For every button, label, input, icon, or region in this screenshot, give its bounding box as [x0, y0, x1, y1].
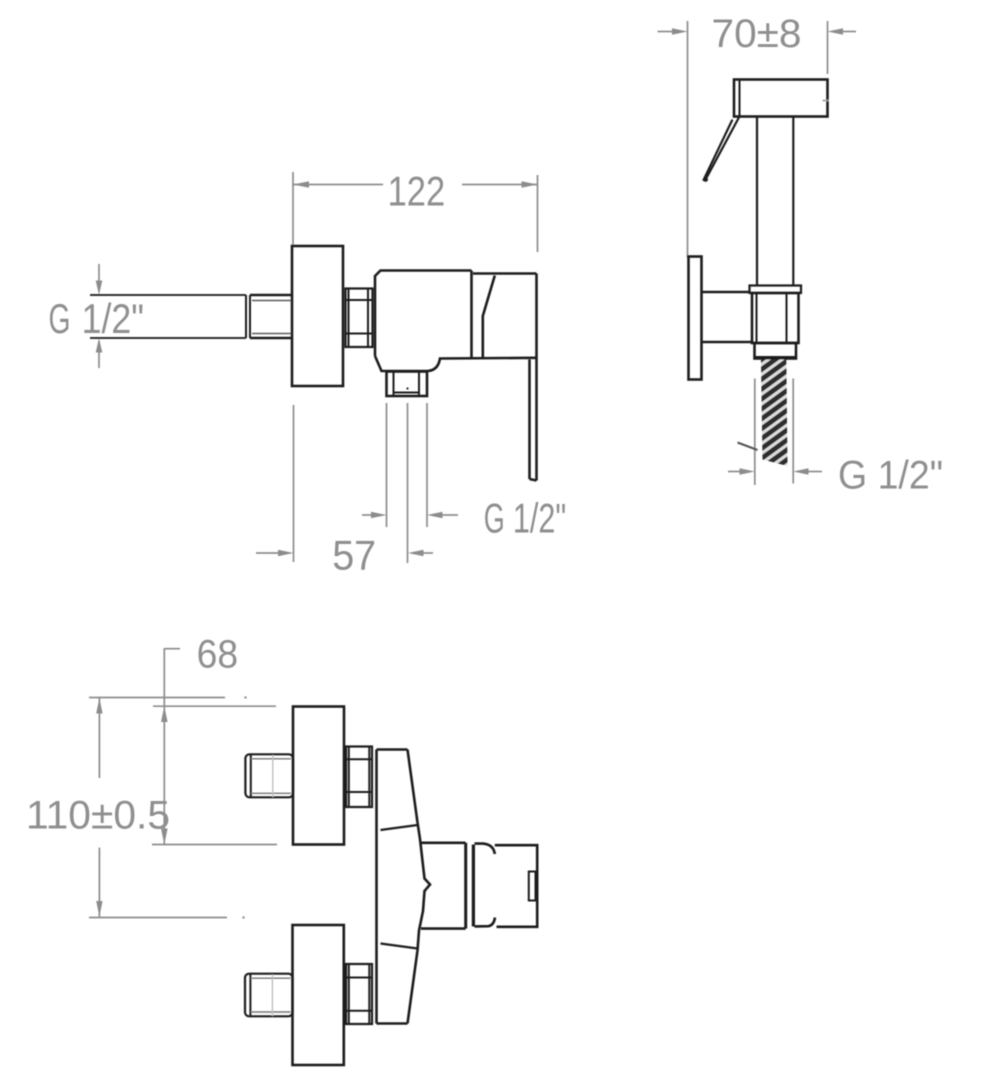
- svg-text:57: 57: [332, 532, 376, 579]
- svg-text:70±8: 70±8: [712, 12, 802, 56]
- svg-text:G: G: [484, 495, 505, 542]
- svg-text:110±0.5: 110±0.5: [26, 794, 170, 838]
- svg-text:122: 122: [388, 168, 446, 215]
- svg-text:1/2": 1/2": [513, 495, 566, 542]
- svg-text:G: G: [49, 295, 71, 342]
- svg-text:G 1/2": G 1/2": [838, 454, 943, 498]
- svg-text:68: 68: [197, 633, 239, 677]
- svg-text:1/2": 1/2": [82, 295, 144, 342]
